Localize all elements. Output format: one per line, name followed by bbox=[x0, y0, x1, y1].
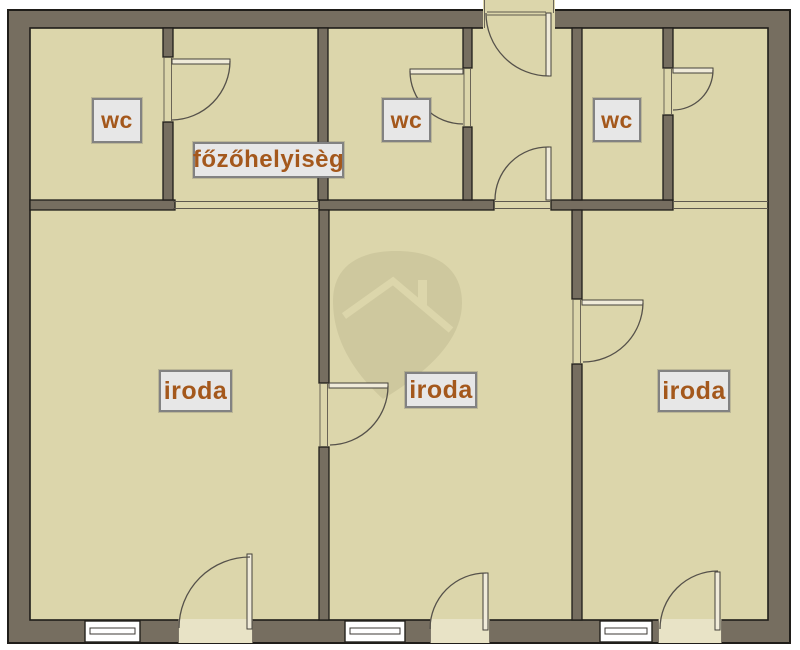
room-label-kitchen: főzőhelyisèg bbox=[193, 142, 344, 178]
room-label-wc-left: wc bbox=[92, 98, 142, 143]
room-label-wc-middle: wc bbox=[382, 98, 431, 142]
room-label-wc-right: wc bbox=[593, 98, 641, 142]
floor-plan: wc főzőhelyisèg wc wc iroda iroda iroda bbox=[0, 0, 800, 650]
room-label-office-left: iroda bbox=[159, 370, 232, 412]
room-label-office-middle: iroda bbox=[405, 372, 477, 408]
room-label-office-right: iroda bbox=[658, 370, 730, 412]
